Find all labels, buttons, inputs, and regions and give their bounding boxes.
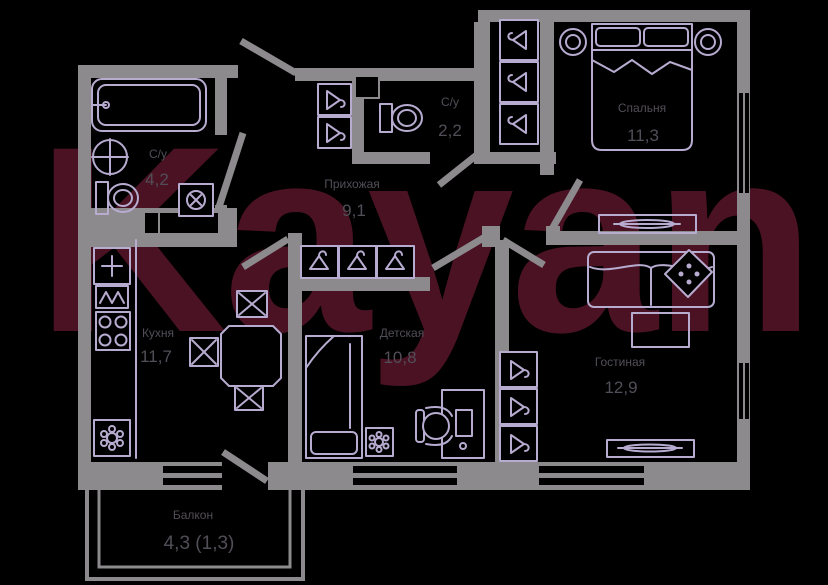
bathtub-icon bbox=[92, 79, 206, 131]
office-chair-icon bbox=[416, 407, 452, 445]
room-area: 11,7 bbox=[140, 347, 172, 366]
floorplan-page: { "watermark": "Kayan", "rooms": { "bath… bbox=[0, 0, 828, 585]
room-label-bathroom: С/у 4,2 bbox=[145, 147, 169, 189]
tv-stand-icon bbox=[607, 440, 694, 457]
floorplan-drawing: С/у 4,2 С/у 2,2 Прихожая 9,1 Спальня 11,… bbox=[0, 0, 828, 585]
room-label-living: Гостиная 12,9 bbox=[595, 355, 645, 397]
room-label-hallway: Прихожая 9,1 bbox=[324, 177, 380, 220]
room-area: 11,3 bbox=[627, 126, 659, 145]
room-area: 12,9 bbox=[604, 378, 637, 397]
room-label-toilet: С/у 2,2 bbox=[438, 95, 462, 140]
kitchen-door bbox=[243, 239, 288, 267]
room-area: 4,2 bbox=[145, 170, 169, 189]
chair-icon bbox=[235, 386, 263, 410]
room-name: Кухня bbox=[142, 326, 174, 340]
room-name: Балкон bbox=[173, 508, 213, 522]
tv-stand-icon bbox=[599, 215, 696, 233]
toilet-door bbox=[439, 154, 478, 185]
room-name: Детская bbox=[380, 326, 424, 340]
room-label-children: Детская 10,8 bbox=[380, 326, 424, 367]
armchair-icon bbox=[665, 250, 712, 297]
toilet-icon bbox=[380, 104, 422, 132]
entrance-door bbox=[241, 41, 296, 73]
room-area: 9,1 bbox=[342, 201, 366, 220]
room-name: Гостиная bbox=[595, 355, 645, 369]
chair-icon bbox=[190, 338, 218, 366]
hallway-wardrobe-row bbox=[301, 246, 414, 278]
room-name: Спальня bbox=[618, 101, 666, 115]
bathroom-door bbox=[219, 133, 243, 207]
bedroom-wardrobe bbox=[500, 20, 538, 144]
living-wardrobe bbox=[500, 352, 537, 461]
room-name: С/у bbox=[149, 147, 167, 161]
room-area: 2,2 bbox=[438, 121, 462, 140]
dishwasher-icon bbox=[94, 420, 130, 456]
children-door bbox=[433, 237, 485, 268]
coffee-table-icon bbox=[632, 313, 689, 347]
room-area: 10,8 bbox=[383, 348, 416, 367]
sink-icon bbox=[92, 139, 128, 175]
room-label-bedroom: Спальня 11,3 bbox=[618, 101, 666, 145]
living-door bbox=[503, 240, 544, 265]
room-name: С/у bbox=[441, 95, 459, 109]
room-area: 4,3 (1,3) bbox=[164, 533, 235, 554]
room-name: Прихожая bbox=[324, 177, 380, 191]
single-bed-icon bbox=[306, 336, 362, 458]
vent-shaft bbox=[355, 76, 379, 98]
hallway-wardrobe bbox=[318, 84, 351, 148]
chair-icon bbox=[237, 291, 267, 317]
dining-table-icon bbox=[190, 291, 281, 410]
bedroom-door bbox=[552, 180, 580, 229]
room-label-balcony: Балкон 4,3 (1,3) bbox=[164, 508, 235, 554]
stove-icon bbox=[96, 312, 130, 350]
pouf-icon bbox=[366, 428, 393, 456]
room-label-kitchen: Кухня 11,7 bbox=[140, 326, 174, 366]
washing-machine-icon bbox=[179, 184, 213, 216]
kitchen-sink-icon bbox=[94, 248, 130, 308]
